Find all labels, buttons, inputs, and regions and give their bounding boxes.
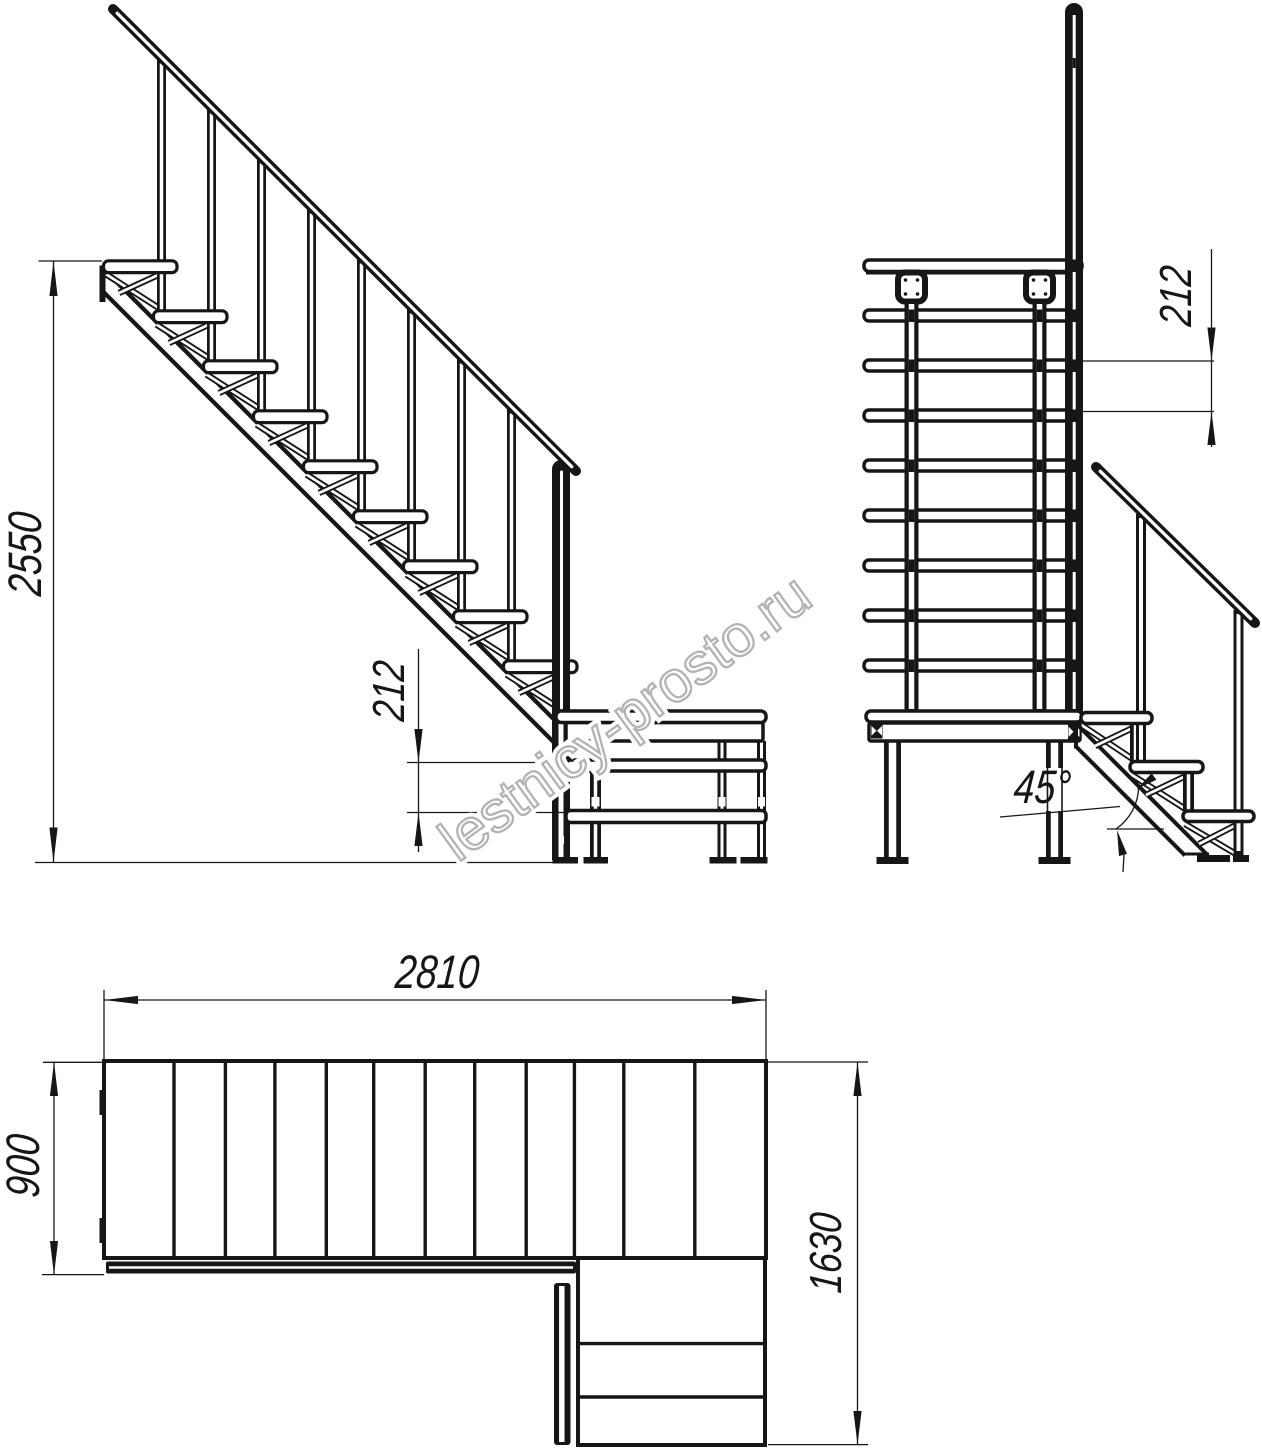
svg-text:2810: 2810 — [392, 946, 481, 999]
svg-text:45°: 45° — [1012, 761, 1073, 814]
svg-text:212: 212 — [1150, 263, 1201, 328]
svg-text:1630: 1630 — [800, 1210, 851, 1295]
svg-text:212: 212 — [363, 658, 414, 723]
svg-text:900: 900 — [0, 1132, 50, 1199]
svg-text:2550: 2550 — [0, 509, 52, 598]
